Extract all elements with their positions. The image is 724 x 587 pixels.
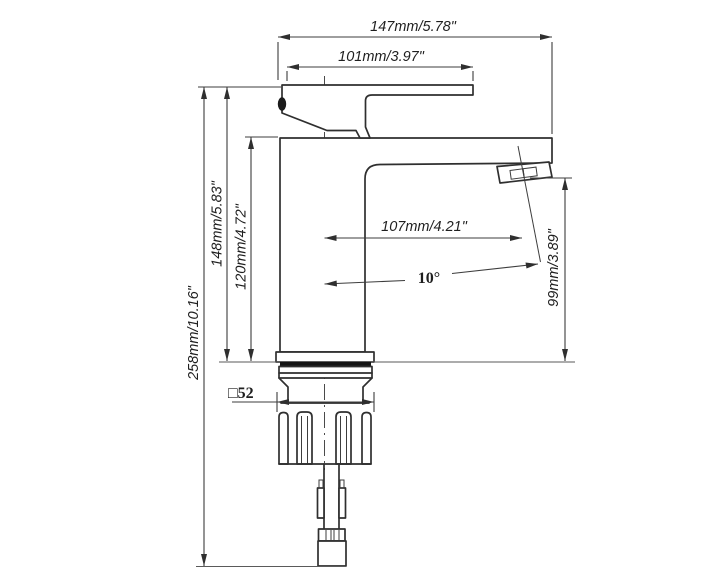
dim-overall-height-label: 258mm/10.16" [186, 285, 202, 381]
dim-height-spout-top-label: 120mm/4.72" [234, 203, 250, 290]
base-plate [276, 352, 374, 362]
dim-overall-width: 147mm/5.78" [278, 19, 552, 40]
dim-overall-height: 258mm/10.16" [186, 87, 207, 566]
dim-handle-length: 101mm/3.97" [287, 49, 473, 70]
dim-base-plate: □52 [228, 385, 374, 405]
shank-end-block [318, 541, 346, 566]
dim-spout-reach-label: 107mm/4.21" [381, 219, 468, 235]
dim-outlet-height-label: 99mm/3.89" [546, 228, 562, 307]
dim-outlet-angle-label: 10° [418, 270, 440, 287]
faucet-dimension-diagram: 147mm/5.78" 101mm/3.97" 258mm/10.16" 148… [0, 0, 724, 587]
technical-drawing-canvas: 147mm/5.78" 101mm/3.97" 258mm/10.16" 148… [0, 0, 724, 587]
shank-hex-nut [319, 529, 346, 541]
base-taper [279, 378, 372, 401]
handle-button-dot [278, 97, 286, 111]
supply-shank [318, 464, 347, 566]
dim-height-handle-top-label: 148mm/5.83" [210, 180, 226, 267]
dim-height-spout-top: 120mm/4.72" [234, 137, 255, 361]
faucet-handle [282, 85, 473, 138]
dim-height-handle-top: 148mm/5.83" [210, 87, 231, 361]
dim-base-plate-label: □52 [228, 385, 254, 402]
dim-handle-length-label: 101mm/3.97" [338, 49, 425, 65]
dim-outlet-height: 99mm/3.89" [546, 178, 568, 361]
dim-overall-width-label: 147mm/5.78" [370, 19, 457, 35]
